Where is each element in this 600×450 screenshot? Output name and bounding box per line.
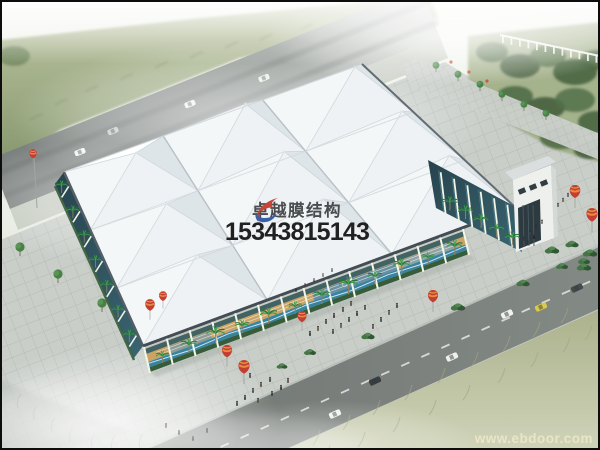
rendering-image: 卓越膜结构 15343815143 www.ebdoor.com [0, 0, 600, 450]
phone-number-watermark: 15343815143 [225, 218, 369, 247]
site-url-watermark: www.ebdoor.com [475, 431, 593, 446]
